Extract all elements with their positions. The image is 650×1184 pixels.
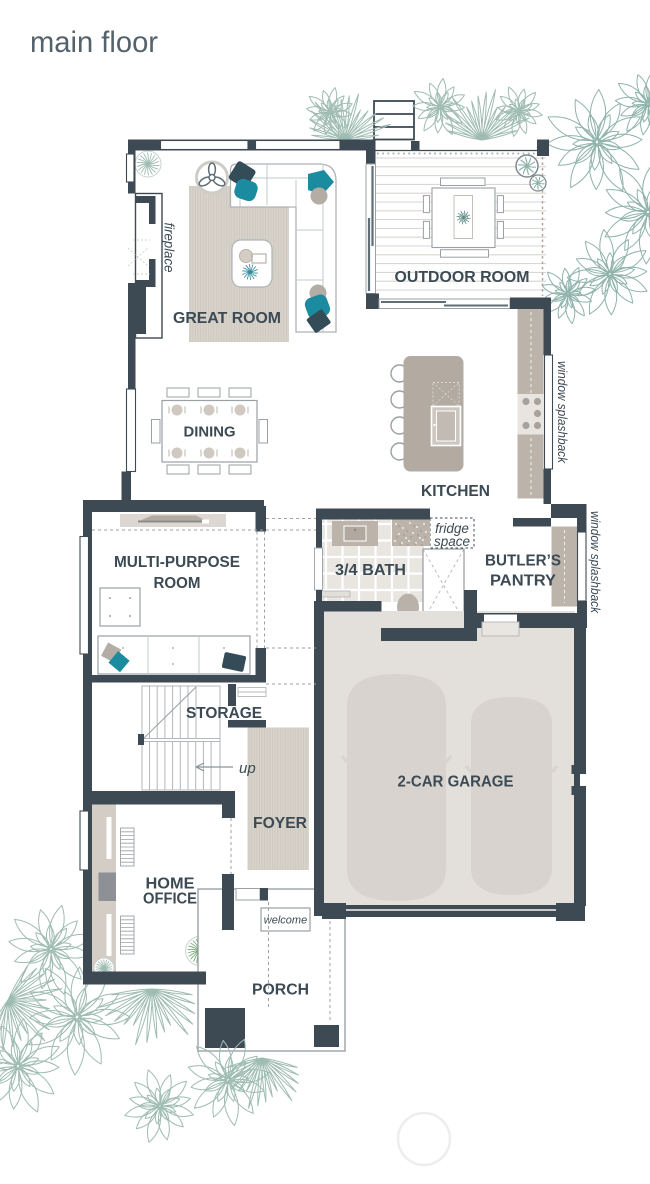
svg-text:window splashback: window splashback (555, 361, 570, 464)
svg-text:fireplace: fireplace (162, 223, 178, 273)
svg-text:STORAGE: STORAGE (186, 705, 262, 722)
svg-text:window splashback: window splashback (588, 511, 603, 614)
svg-text:PORCH: PORCH (252, 982, 309, 999)
svg-text:ROOM: ROOM (154, 575, 201, 592)
svg-text:main floor: main floor (30, 26, 158, 59)
svg-text:2-CAR GARAGE: 2-CAR GARAGE (398, 774, 514, 791)
svg-text:OFFICE: OFFICE (143, 891, 197, 908)
svg-text:DINING: DINING (184, 425, 236, 441)
svg-text:KITCHEN: KITCHEN (421, 483, 490, 500)
svg-text:FOYER: FOYER (253, 815, 307, 832)
svg-text:PANTRY: PANTRY (490, 573, 557, 590)
svg-text:OUTDOOR ROOM: OUTDOOR ROOM (395, 269, 530, 286)
svg-text:welcome: welcome (264, 915, 307, 927)
svg-text:up: up (239, 760, 256, 777)
svg-text:BUTLER’S: BUTLER’S (485, 553, 561, 570)
svg-text:space: space (434, 534, 470, 549)
svg-text:3/4 BATH: 3/4 BATH (335, 562, 406, 579)
svg-text:GREAT ROOM: GREAT ROOM (173, 310, 281, 327)
svg-text:MULTI-PURPOSE: MULTI-PURPOSE (114, 554, 240, 571)
